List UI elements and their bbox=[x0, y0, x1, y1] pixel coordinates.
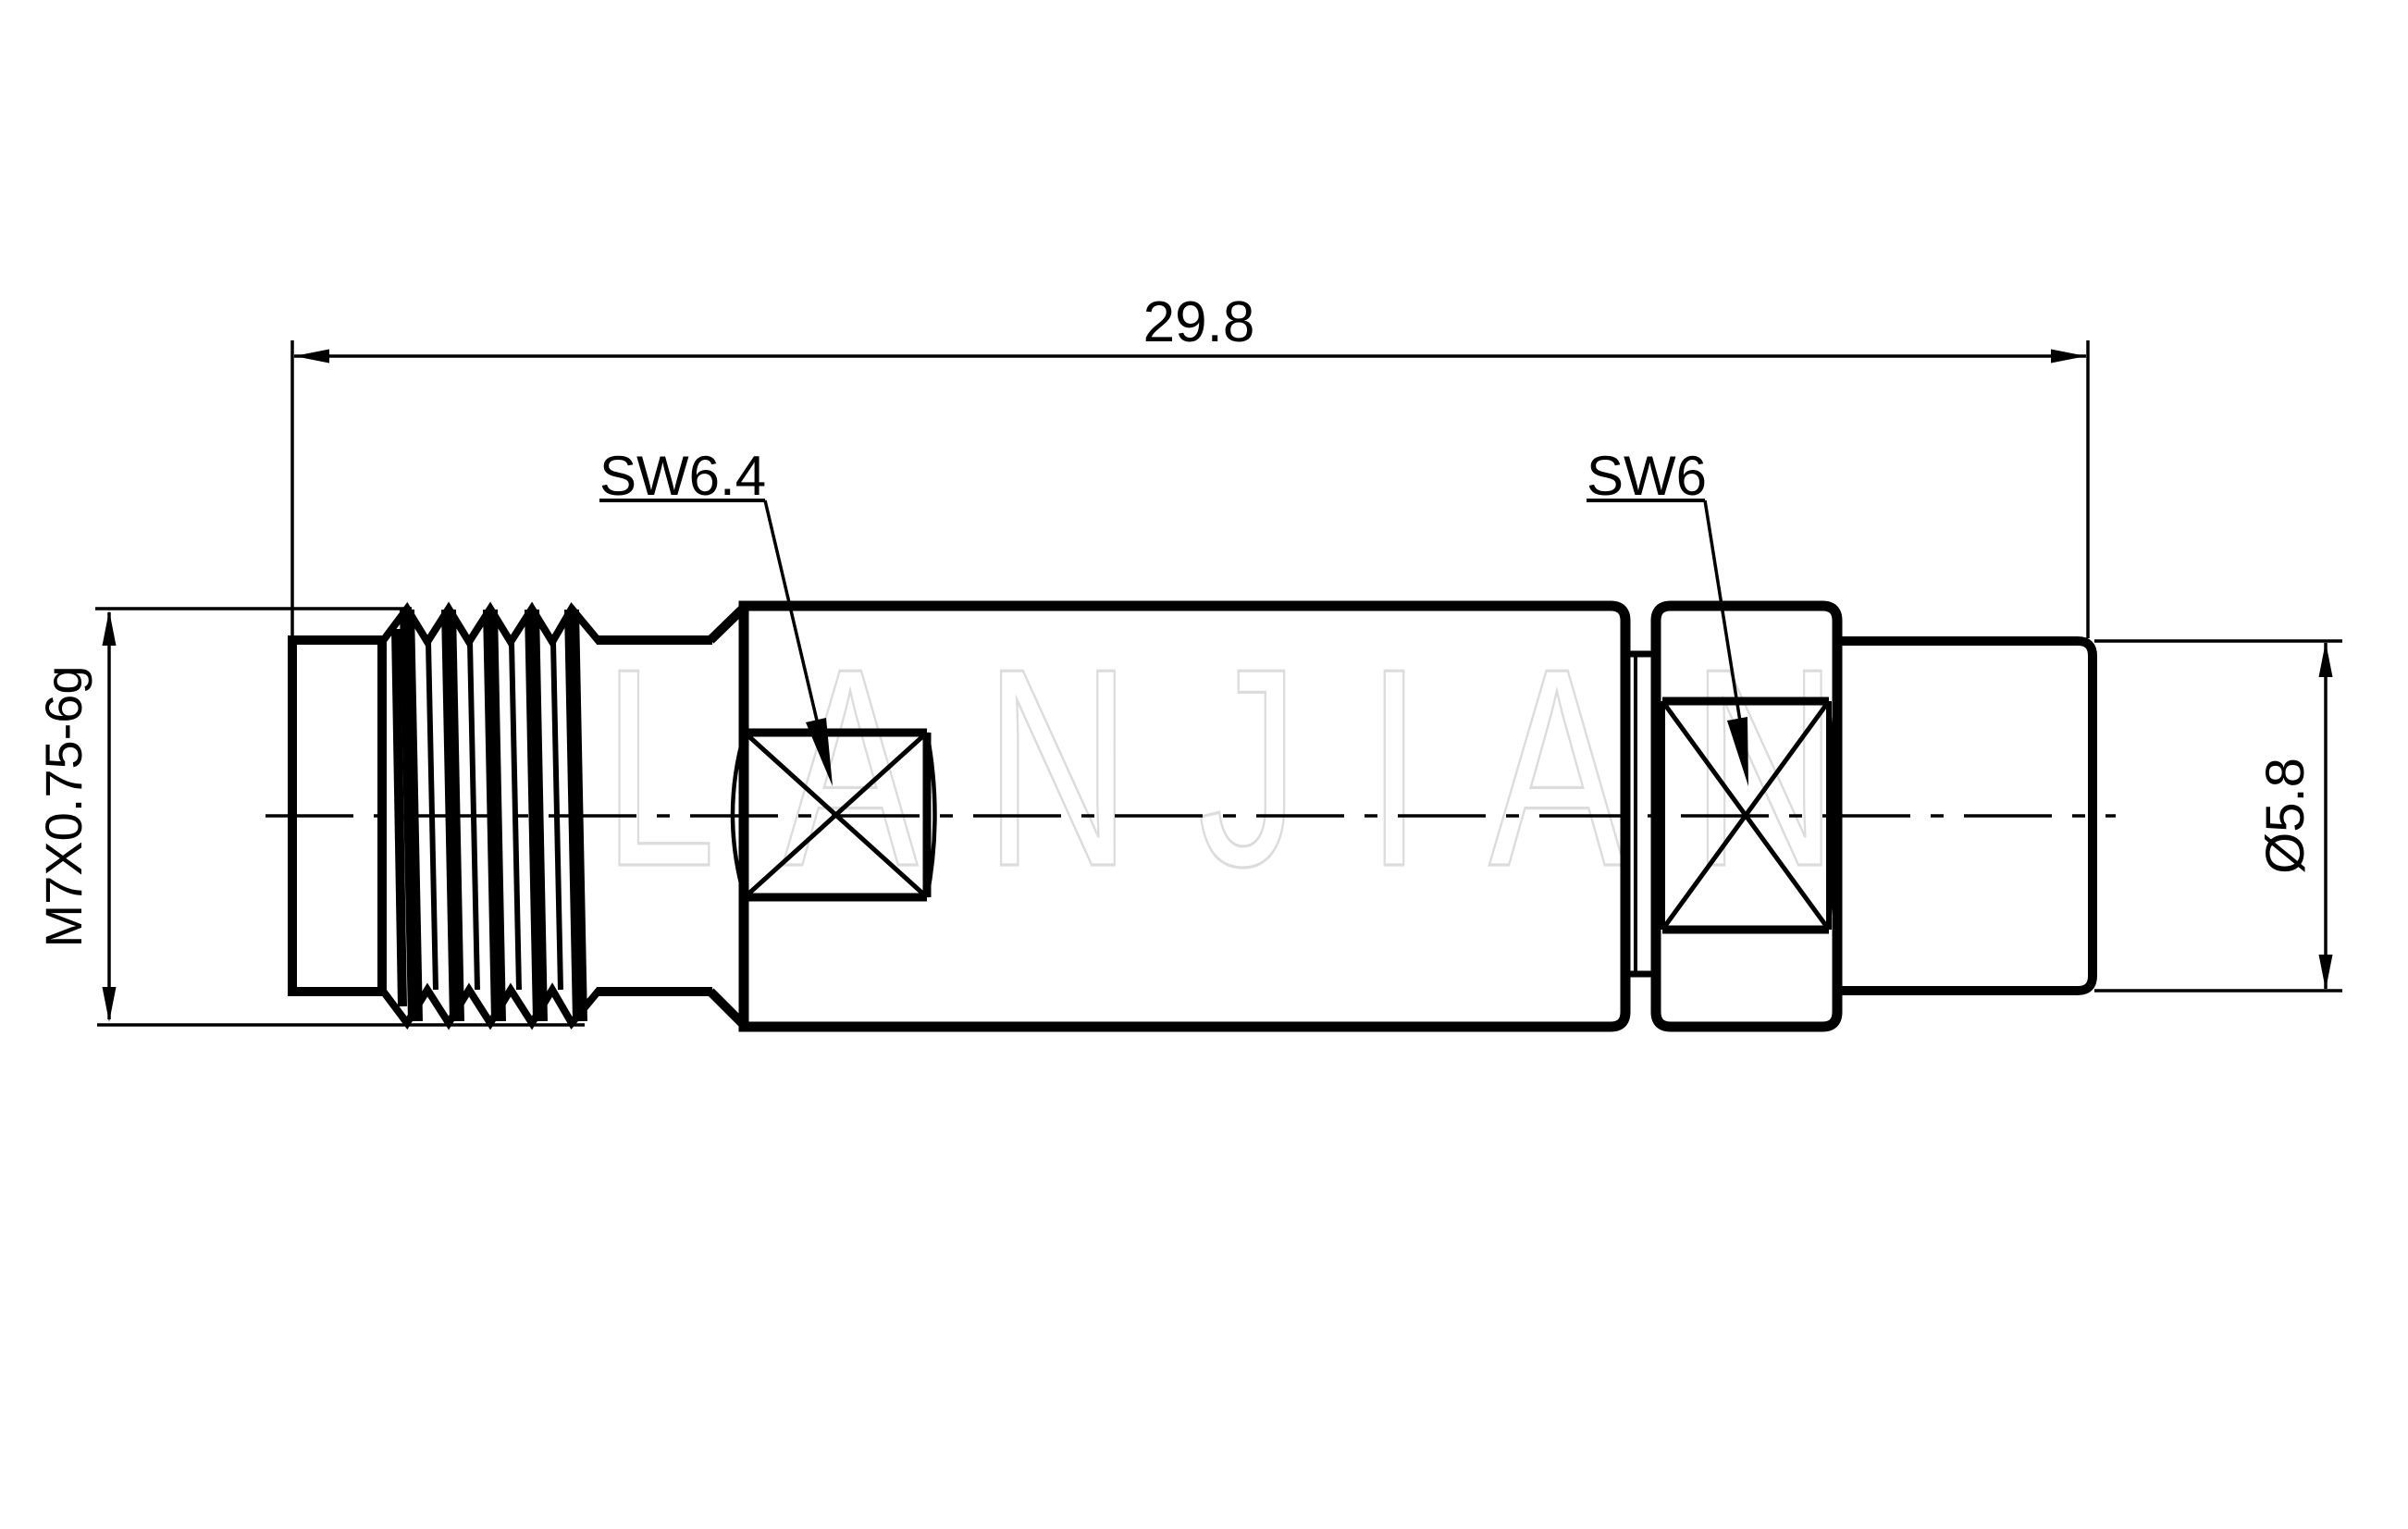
technical-drawing-canvas: LANJIAN bbox=[0, 0, 2408, 1529]
thread-spec-value: M7X0.75-6g bbox=[34, 665, 93, 947]
wrench-size-left-value: SW6.4 bbox=[599, 445, 766, 507]
overall-length-value: 29.8 bbox=[1143, 290, 1255, 354]
drawing-sheet: LANJIAN bbox=[0, 0, 2408, 1529]
wrench-size-right-value: SW6 bbox=[1587, 445, 1707, 507]
diameter-value: Ø5.8 bbox=[2255, 758, 2315, 874]
